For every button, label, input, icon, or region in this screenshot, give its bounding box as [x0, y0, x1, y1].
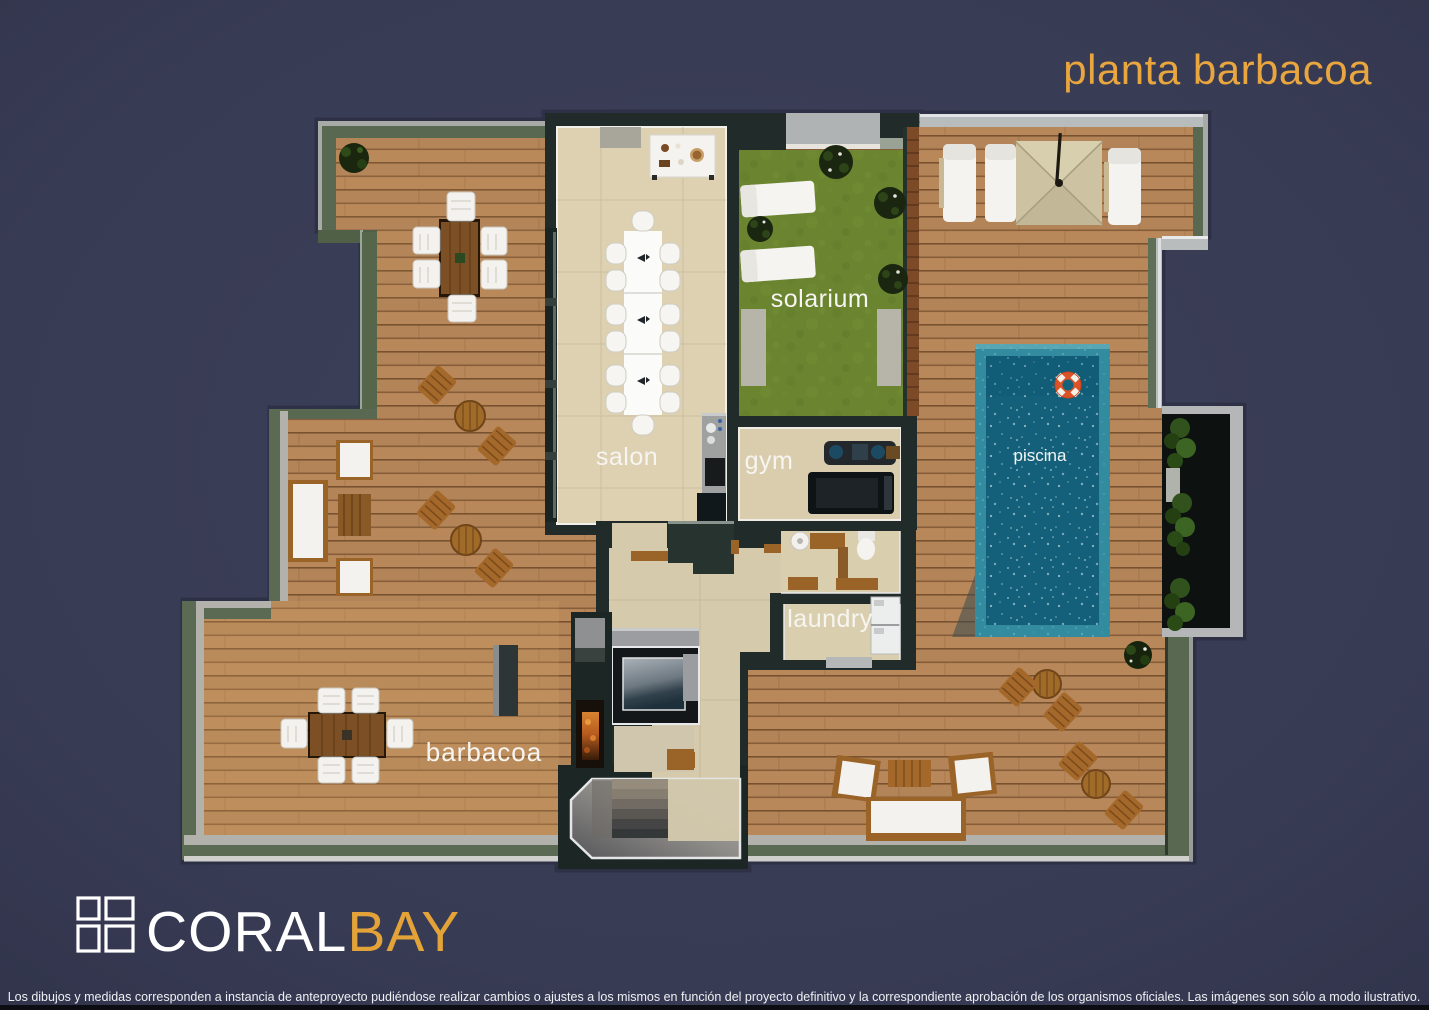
svg-text:barbacoa: barbacoa — [426, 737, 542, 767]
svg-text:laundry: laundry — [787, 605, 873, 633]
svg-text:gym: gym — [745, 447, 794, 475]
svg-text:piscina: piscina — [1014, 446, 1067, 465]
svg-text:salon: salon — [596, 443, 658, 471]
svg-text:solarium: solarium — [771, 285, 869, 313]
svg-text:CORALBAY: CORALBAY — [146, 900, 460, 964]
svg-text:planta barbacoa: planta barbacoa — [1063, 46, 1372, 93]
svg-text:Los dibujos y medidas correspo: Los dibujos y medidas corresponden a ins… — [8, 990, 1421, 1004]
